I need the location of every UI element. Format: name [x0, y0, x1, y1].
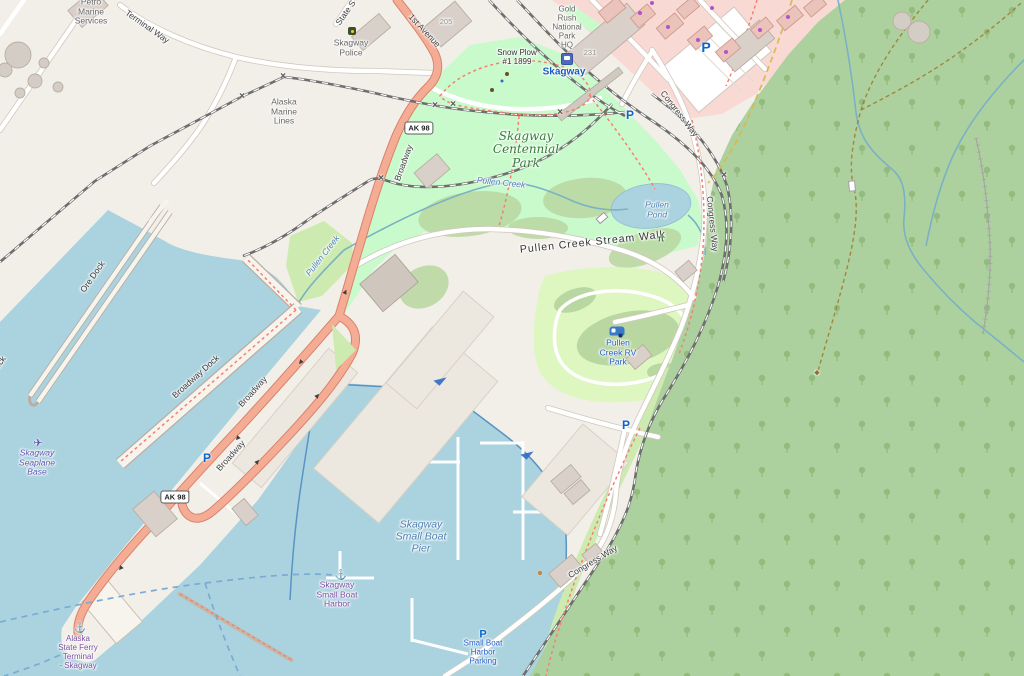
map-canvas[interactable]: Petro Marine ServicesTerminal WayState S…	[0, 0, 1024, 676]
map-base-layer	[0, 0, 1024, 676]
